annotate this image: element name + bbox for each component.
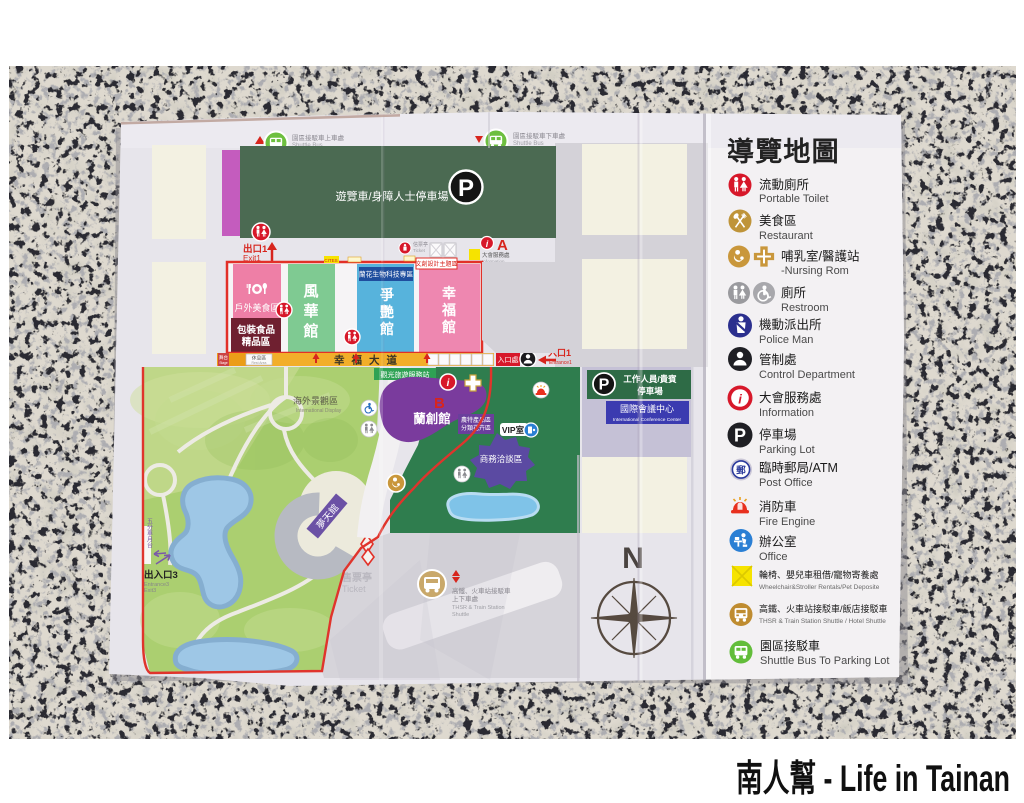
svg-text:美食區: 美食區 <box>759 213 797 228</box>
svg-text:五分車月台: 五分車月台 <box>146 518 153 549</box>
svg-text:Information: Information <box>759 407 814 419</box>
svg-text:出入口3: 出入口3 <box>144 569 178 581</box>
svg-text:Rest Area: Rest Area <box>252 361 267 365</box>
svg-text:大會服務處: 大會服務處 <box>759 391 822 405</box>
svg-text:農特產品區: 農特產品區 <box>461 416 491 424</box>
svg-text:VIP室: VIP室 <box>502 425 525 435</box>
svg-text:哺乳室/醫護站: 哺乳室/醫護站 <box>781 249 859 264</box>
svg-text:園區接駁車上車處: 園區接駁車上車處 <box>292 133 345 142</box>
svg-text:機動派出所: 機動派出所 <box>759 317 822 332</box>
svg-text:P: P <box>734 426 746 446</box>
svg-text:廁所: 廁所 <box>781 285 806 300</box>
svg-text:館: 館 <box>302 322 318 340</box>
svg-text:上下車處: 上下車處 <box>452 594 479 603</box>
svg-text:Parking Lot: Parking Lot <box>759 444 815 456</box>
svg-text:消防車: 消防車 <box>759 499 797 514</box>
svg-text:高鐵、火車站接駁車/飯店接駁車: 高鐵、火車站接駁車/飯店接駁車 <box>759 603 888 614</box>
svg-text:國際會議中心: 國際會議中心 <box>620 403 674 414</box>
svg-text:Stage: Stage <box>219 361 228 365</box>
svg-text:Fire Engine: Fire Engine <box>759 516 815 528</box>
svg-text:Control Department: Control Department <box>759 369 855 381</box>
svg-text:高鐵、火車站接駁車: 高鐵、火車站接駁車 <box>452 586 511 595</box>
svg-text:戶外美食區: 戶外美食區 <box>234 302 279 313</box>
svg-text:THSR & Train Station Shuttle /: THSR & Train Station Shuttle / Hotel Shu… <box>759 618 886 625</box>
svg-text:Police Man: Police Man <box>759 334 813 346</box>
svg-text:THSR & Train Station: THSR & Train Station <box>452 605 505 611</box>
svg-text:郵: 郵 <box>736 465 746 477</box>
svg-text:Entrance1: Entrance1 <box>549 360 572 366</box>
svg-text:園區接駁車下車處: 園區接駁車下車處 <box>513 131 566 140</box>
svg-text:Office: Office <box>759 551 788 563</box>
svg-text:售票亭: 售票亭 <box>342 571 372 584</box>
svg-text:i: i <box>447 378 450 389</box>
svg-text:風: 風 <box>303 283 318 300</box>
svg-text:CITES: CITES <box>324 258 337 263</box>
svg-text:Wheelchair&Stroller Rentals/Pe: Wheelchair&Stroller Rentals/Pet Deposite <box>759 584 880 591</box>
svg-text:International Display: International Display <box>296 408 342 414</box>
svg-text:導覽地圖: 導覽地圖 <box>727 136 840 167</box>
svg-text:南人幫 - Life in Tainan: 南人幫 - Life in Tainan <box>736 758 1010 799</box>
svg-text:流動廁所: 流動廁所 <box>759 177 809 192</box>
svg-text:P: P <box>458 175 474 202</box>
svg-text:工作人員/貴賓: 工作人員/貴賓 <box>623 374 677 384</box>
svg-text:商務洽談區: 商務洽談區 <box>480 454 523 464</box>
svg-text:管制處: 管制處 <box>759 352 797 367</box>
svg-text:海外景觀區: 海外景觀區 <box>293 395 338 406</box>
svg-text:Ticket: Ticket <box>342 584 366 594</box>
svg-text:幸: 幸 <box>442 285 456 301</box>
svg-text:精品區: 精品區 <box>242 336 271 348</box>
svg-text:臨時郵局/ATM: 臨時郵局/ATM <box>759 461 838 475</box>
svg-text:停車場: 停車場 <box>759 427 797 442</box>
svg-text:文創設計主題區: 文創設計主題區 <box>415 260 457 268</box>
svg-text:Shuttle Bus To Parking Lot: Shuttle Bus To Parking Lot <box>760 655 889 667</box>
svg-text:Ticket: Ticket <box>413 248 426 253</box>
svg-text:Restaurant: Restaurant <box>759 230 813 242</box>
svg-text:舞台: 舞台 <box>219 354 228 361</box>
svg-text:大會服務處: 大會服務處 <box>482 251 510 259</box>
svg-text:B: B <box>434 395 445 412</box>
svg-text:Restroom: Restroom <box>781 302 829 314</box>
svg-text:福: 福 <box>441 302 456 318</box>
svg-text:館: 館 <box>441 319 456 335</box>
svg-text:-Nursing Rom: -Nursing Rom <box>781 265 849 277</box>
svg-text:園區接駁車: 園區接駁車 <box>760 638 820 653</box>
svg-text:幸福大道: 幸福大道 <box>334 354 404 367</box>
svg-text:A: A <box>497 237 508 254</box>
svg-text:Shuttle: Shuttle <box>452 612 469 618</box>
svg-text:International Conference Cente: International Conference Center <box>613 417 682 423</box>
svg-text:入口處: 入口處 <box>498 355 519 364</box>
svg-text:辦公室: 辦公室 <box>759 534 797 549</box>
svg-text:輪椅、嬰兒車租借/寵物寄養處: 輪椅、嬰兒車租借/寵物寄養處 <box>759 569 879 580</box>
svg-text:Exit3: Exit3 <box>144 588 156 594</box>
svg-text:蘭創館: 蘭創館 <box>413 411 451 426</box>
svg-text:遊覽車/身障人士停車場: 遊覽車/身障人士停車場 <box>335 189 448 203</box>
svg-text:i: i <box>738 392 742 407</box>
svg-text:包裝食品: 包裝食品 <box>236 324 275 336</box>
svg-text:P: P <box>599 377 610 394</box>
svg-text:Post Office: Post Office <box>759 477 813 489</box>
svg-text:Portable Toilet: Portable Toilet <box>759 193 829 205</box>
svg-text:華: 華 <box>303 302 318 320</box>
svg-text:蘭花生物科技專區: 蘭花生物科技專區 <box>359 270 414 279</box>
svg-text:信票亭: 信票亭 <box>413 241 428 248</box>
